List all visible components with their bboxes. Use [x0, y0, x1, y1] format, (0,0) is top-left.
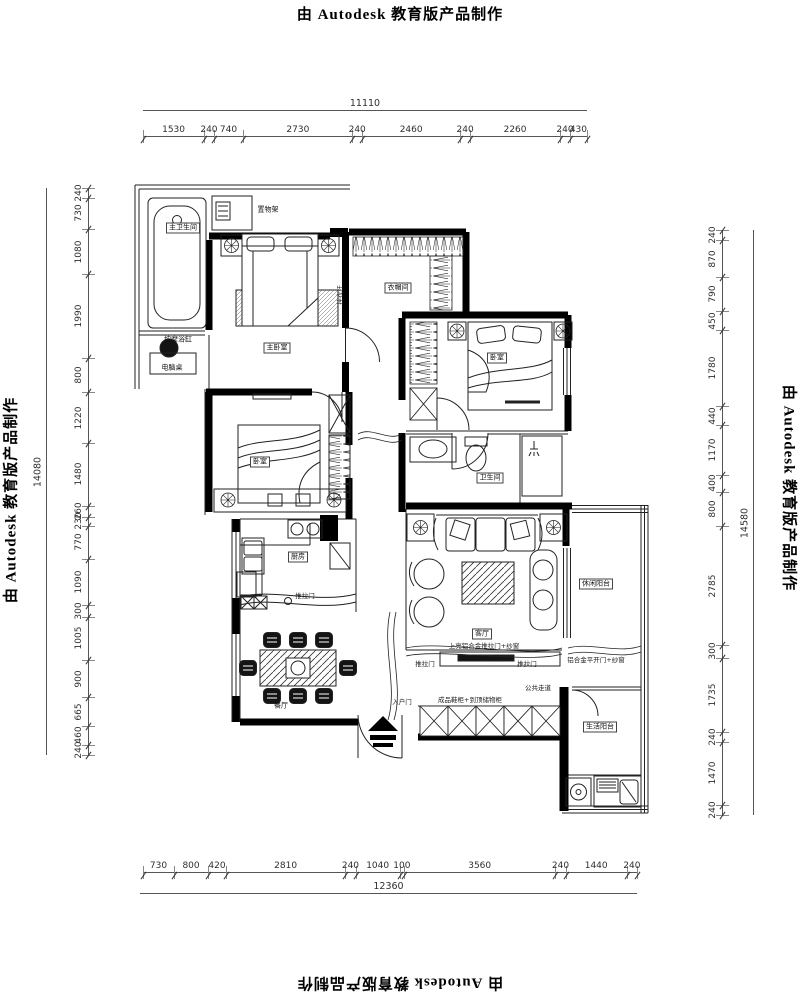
- dim-right-seg-14: 240: [708, 801, 718, 818]
- anno-hanger-rod: 挂衣杆: [337, 285, 344, 305]
- dim-bottom-seg-4: 240: [342, 861, 359, 871]
- dim-top-seg-0: 1530: [162, 125, 185, 135]
- dim-left-seg-2: 1080: [74, 240, 84, 263]
- dim-right-seg-13: 1470: [708, 762, 718, 785]
- anno-top-slide: 上亮铝合金推拉门+纱窗: [449, 643, 519, 650]
- dim-right-seg-5: 440: [708, 407, 718, 424]
- dim-left-seg-3: 1990: [74, 305, 84, 328]
- room-label-living: 客厅: [472, 629, 492, 640]
- room-label-master-bath: 主卫生间: [166, 223, 200, 234]
- dim-top-seg-2: 740: [220, 125, 237, 135]
- autodesk-stamp-right: 由 Autodesk 教育版产品制作: [780, 385, 800, 591]
- dim-bottom-seg-6: 100: [393, 861, 410, 871]
- dim-left-seg-5: 1220: [74, 406, 84, 429]
- dim-chain-right: 2408707904501780440117040080027853001735…: [706, 230, 723, 815]
- dim-left-seg-1: 730: [74, 205, 84, 222]
- dim-chain-left: 2407301080199080012201480260230770109030…: [72, 188, 89, 755]
- dim-left-seg-10: 1090: [74, 570, 84, 593]
- dim-left-seg-0: 240: [74, 184, 84, 201]
- room-label-balcony-service: 生活阳台: [583, 722, 617, 733]
- anno-swing-door: 铝合金平开门+纱窗: [567, 657, 624, 664]
- dim-top-seg-1: 240: [200, 125, 217, 135]
- anno-sliding-door-1: 推拉门: [295, 593, 315, 600]
- dim-right-seg-10: 300: [708, 643, 718, 660]
- dim-right-seg-1: 870: [708, 250, 718, 267]
- dim-left-seg-16: 240: [74, 741, 84, 758]
- dim-bottom-seg-7: 3560: [468, 861, 491, 871]
- dim-left-seg-13: 900: [74, 670, 84, 687]
- dim-left-seg-6: 1480: [74, 463, 84, 486]
- dim-total-left: 14080: [46, 188, 47, 755]
- dim-top-seg-5: 2460: [400, 125, 423, 135]
- room-label-bathroom: 卫生间: [477, 473, 504, 484]
- dim-left-seg-8: 230: [74, 513, 84, 530]
- floorplan-linework: [0, 0, 800, 1000]
- dim-right-seg-4: 1780: [708, 357, 718, 380]
- dim-top-seg-3: 2730: [286, 125, 309, 135]
- dim-bottom-seg-3: 2810: [274, 861, 297, 871]
- dim-total-right: 14580: [753, 230, 754, 815]
- dim-right-seg-11: 1735: [708, 683, 718, 706]
- autodesk-stamp-bottom: 由 Autodesk 教育版产品制作: [297, 974, 503, 995]
- dim-bottom-seg-10: 240: [623, 861, 640, 871]
- dim-top-seg-9: 430: [570, 125, 587, 135]
- dim-right-seg-2: 790: [708, 286, 718, 303]
- dim-left-seg-14: 665: [74, 703, 84, 720]
- room-label-dining: 餐厅: [274, 703, 288, 710]
- dim-right-seg-12: 240: [708, 728, 718, 745]
- dim-bottom-seg-8: 240: [552, 861, 569, 871]
- dim-chain-bottom: 7308004202810240104010035602401440240: [143, 857, 637, 873]
- room-label-balcony-leisure: 休闲阳台: [579, 579, 613, 590]
- room-label-tub: 按摩浴缸: [164, 337, 192, 344]
- anno-corridor: 公共走道: [525, 685, 551, 692]
- dim-right-seg-6: 1170: [708, 439, 718, 462]
- dim-bottom-seg-0: 730: [150, 861, 167, 871]
- dim-top-seg-4: 240: [349, 125, 366, 135]
- dim-top-seg-7: 2260: [504, 125, 527, 135]
- dim-left-seg-9: 770: [74, 534, 84, 551]
- dim-left-seg-12: 1005: [74, 627, 84, 650]
- floorplan-page: 由 Autodesk 教育版产品制作 由 Autodesk 教育版产品制作 由 …: [0, 0, 800, 1000]
- dim-total-bottom: 12360: [140, 893, 637, 894]
- autodesk-stamp-top: 由 Autodesk 教育版产品制作: [297, 3, 503, 24]
- dim-bottom-seg-2: 420: [208, 861, 225, 871]
- room-label-cloakroom: 衣帽间: [385, 283, 412, 294]
- room-label-kitchen: 厨房: [288, 552, 308, 563]
- dim-left-seg-4: 800: [74, 366, 84, 383]
- dim-right-seg-9: 2785: [708, 574, 718, 597]
- dim-right-seg-8: 800: [708, 500, 718, 517]
- dim-chain-top: 1530240740273024024602402260240430: [143, 121, 587, 137]
- dim-right-seg-0: 240: [708, 227, 718, 244]
- anno-entry-door: 入户门: [392, 699, 412, 706]
- room-label-desk: 电脑桌: [162, 365, 183, 372]
- dim-right-seg-3: 450: [708, 312, 718, 329]
- dim-top-seg-6: 240: [457, 125, 474, 135]
- anno-sliding-door-2: 推拉门: [415, 661, 435, 668]
- room-label-bedroom3: 卧室: [250, 457, 270, 468]
- dim-bottom-seg-1: 800: [182, 861, 199, 871]
- autodesk-stamp-left: 由 Autodesk 教育版产品制作: [0, 397, 21, 603]
- anno-shoe-cabinet: 成品鞋柜+到顶储物柜: [438, 697, 502, 704]
- room-label-master-bedroom: 主卧室: [264, 343, 291, 354]
- dim-total-top: 11110: [143, 110, 587, 111]
- anno-sliding-door-3: 推拉门: [517, 661, 537, 668]
- dim-bottom-seg-5: 1040: [366, 861, 389, 871]
- room-label-bedroom2: 卧室: [487, 353, 507, 364]
- dim-left-seg-11: 300: [74, 602, 84, 619]
- room-label-vanity: 置物架: [258, 207, 279, 214]
- dim-bottom-seg-9: 1440: [585, 861, 608, 871]
- dim-right-seg-7: 400: [708, 475, 718, 492]
